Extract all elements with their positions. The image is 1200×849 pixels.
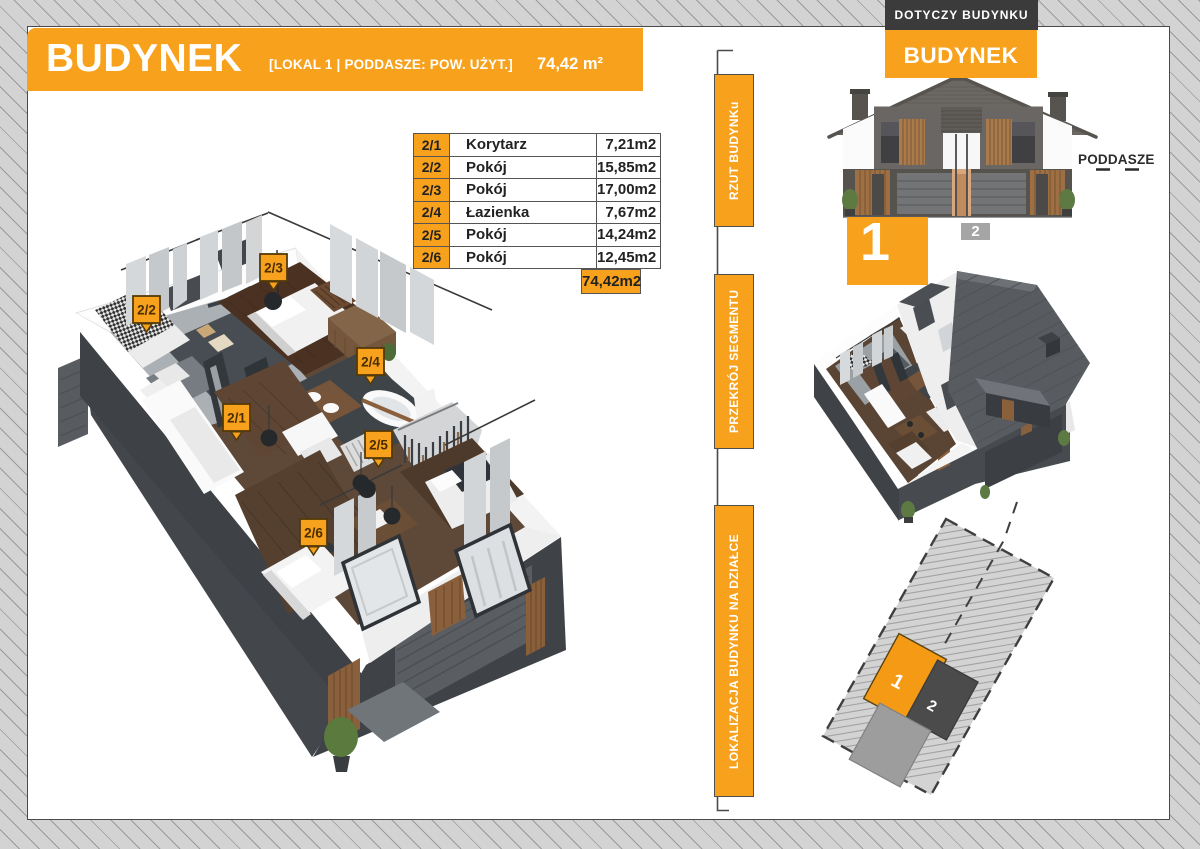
svg-text:2/6: 2/6 bbox=[304, 526, 323, 541]
svg-text:2/4: 2/4 bbox=[361, 355, 380, 370]
svg-text:2/2: 2/2 bbox=[137, 303, 156, 318]
svg-text:2/1: 2/1 bbox=[227, 411, 246, 426]
svg-text:2/3: 2/3 bbox=[264, 261, 283, 276]
svg-text:2/5: 2/5 bbox=[369, 438, 388, 453]
